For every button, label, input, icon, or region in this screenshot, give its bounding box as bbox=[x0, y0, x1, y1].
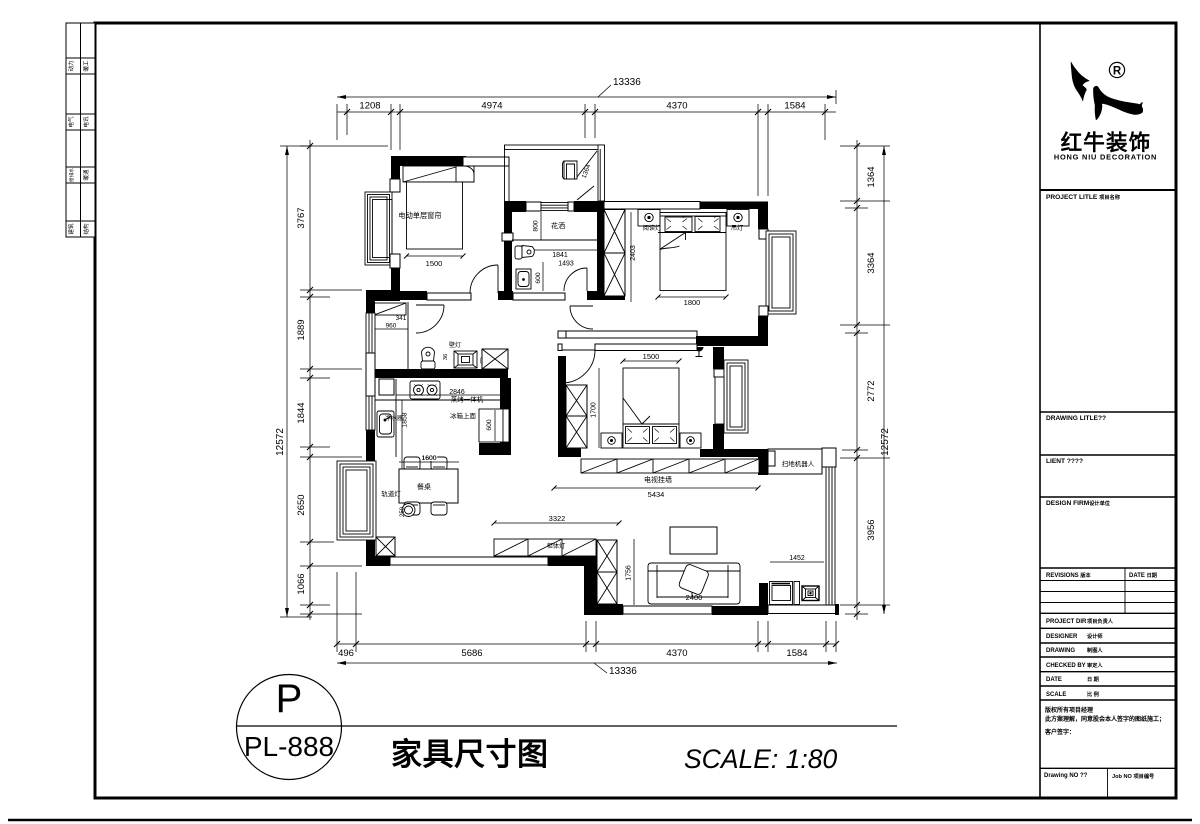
svg-text:壁灯: 壁灯 bbox=[449, 341, 461, 349]
svg-text:1800: 1800 bbox=[684, 298, 701, 307]
svg-text:5686: 5686 bbox=[461, 648, 482, 659]
svg-text:暖工: 暖工 bbox=[82, 60, 90, 72]
svg-text:版权所有项目经理: 版权所有项目经理 bbox=[1044, 706, 1093, 714]
svg-text:DATE 日期: DATE 日期 bbox=[1129, 571, 1157, 579]
svg-text:DRAWING LITLE??: DRAWING LITLE?? bbox=[1046, 415, 1106, 422]
svg-text:设计师: 设计师 bbox=[1087, 632, 1103, 640]
svg-text:1493: 1493 bbox=[558, 261, 574, 268]
svg-text:PROJECT DIR: PROJECT DIR bbox=[1046, 619, 1087, 625]
svg-text:SCALE: 1:80: SCALE: 1:80 bbox=[684, 744, 837, 774]
svg-text:341: 341 bbox=[396, 315, 407, 322]
svg-text:5434: 5434 bbox=[648, 490, 665, 499]
svg-text:1364: 1364 bbox=[866, 166, 877, 187]
svg-text:Job NO 项目编号: Job NO 项目编号 bbox=[1112, 772, 1154, 780]
svg-text:REVISIONS 版本: REVISIONS 版本 bbox=[1046, 571, 1092, 579]
svg-text:1208: 1208 bbox=[359, 101, 380, 112]
svg-text:P: P bbox=[276, 677, 303, 721]
svg-text:红牛装饰: 红牛装饰 bbox=[1061, 130, 1152, 155]
svg-text:R: R bbox=[1113, 66, 1122, 78]
svg-text:1600: 1600 bbox=[421, 455, 436, 462]
svg-text:家具尺寸图: 家具尺寸图 bbox=[391, 737, 549, 772]
svg-text:13336: 13336 bbox=[609, 666, 637, 677]
svg-text:结构: 结构 bbox=[82, 223, 90, 235]
svg-text:柜体灯: 柜体灯 bbox=[547, 542, 566, 550]
svg-text:HONG NIU DECORATION: HONG NIU DECORATION bbox=[1054, 153, 1157, 162]
svg-text:电动单层窗帘: 电动单层窗帘 bbox=[398, 211, 441, 220]
svg-text:3364: 3364 bbox=[866, 252, 877, 273]
svg-text:1700: 1700 bbox=[591, 402, 598, 418]
svg-text:净水器: 净水器 bbox=[385, 414, 403, 422]
svg-text:冰箱上面: 冰箱上面 bbox=[450, 411, 477, 420]
svg-text:DESIGNER: DESIGNER bbox=[1046, 634, 1078, 640]
svg-text:2772: 2772 bbox=[866, 380, 877, 401]
svg-text:2846: 2846 bbox=[449, 389, 465, 396]
svg-text:客户签字：: 客户签字： bbox=[1044, 728, 1075, 736]
svg-text:DATE: DATE bbox=[1046, 677, 1062, 683]
svg-text:1584: 1584 bbox=[786, 648, 807, 659]
svg-text:960: 960 bbox=[386, 323, 397, 330]
svg-text:轨道灯: 轨道灯 bbox=[381, 489, 401, 498]
svg-text:花洒: 花洒 bbox=[551, 221, 565, 230]
svg-text:Drawing NO ??: Drawing NO ?? bbox=[1044, 773, 1088, 779]
svg-text:3322: 3322 bbox=[549, 514, 566, 523]
svg-text:PL-888: PL-888 bbox=[244, 731, 334, 762]
svg-text:制图人: 制图人 bbox=[1087, 646, 1103, 654]
svg-text:1841: 1841 bbox=[552, 252, 568, 259]
svg-text:1066: 1066 bbox=[296, 573, 307, 594]
svg-text:LIENT ????: LIENT ???? bbox=[1046, 458, 1083, 465]
svg-text:1844: 1844 bbox=[296, 402, 307, 423]
svg-text:CHECKED BY: CHECKED BY bbox=[1046, 663, 1086, 669]
svg-text:给排水: 给排水 bbox=[68, 168, 75, 182]
svg-text:4974: 4974 bbox=[481, 101, 502, 112]
svg-text:电气: 电气 bbox=[67, 116, 75, 128]
svg-text:阅读灯: 阅读灯 bbox=[643, 224, 662, 232]
svg-text:1584: 1584 bbox=[784, 101, 805, 112]
svg-text:250: 250 bbox=[400, 506, 406, 517]
svg-text:3767: 3767 bbox=[296, 207, 307, 228]
svg-text:12572: 12572 bbox=[880, 428, 891, 456]
svg-text:项目负责人: 项目负责人 bbox=[1087, 617, 1114, 625]
svg-text:建筑: 建筑 bbox=[67, 223, 75, 235]
svg-text:4370: 4370 bbox=[666, 648, 687, 659]
svg-text:电讯: 电讯 bbox=[82, 116, 90, 128]
svg-text:DRAWING: DRAWING bbox=[1046, 648, 1075, 654]
svg-text:餐桌: 餐桌 bbox=[417, 482, 431, 491]
svg-text:比 例: 比 例 bbox=[1087, 690, 1099, 698]
svg-text:496: 496 bbox=[338, 648, 354, 659]
svg-text:1452: 1452 bbox=[789, 555, 805, 562]
svg-text:800: 800 bbox=[533, 220, 540, 232]
svg-text:36: 36 bbox=[443, 354, 449, 360]
svg-text:日 期: 日 期 bbox=[1087, 675, 1099, 683]
svg-text:蒸烤一体机: 蒸烤一体机 bbox=[451, 395, 484, 404]
svg-text:1858: 1858 bbox=[402, 412, 409, 427]
svg-text:SCALE: SCALE bbox=[1046, 692, 1066, 698]
svg-text:电视挂墙: 电视挂墙 bbox=[644, 475, 672, 484]
svg-text:PROJECT LITLE 项目名称: PROJECT LITLE 项目名称 bbox=[1046, 193, 1121, 201]
svg-text:1756: 1756 bbox=[626, 565, 633, 581]
svg-text:3956: 3956 bbox=[866, 519, 877, 540]
svg-text:4370: 4370 bbox=[666, 101, 687, 112]
svg-text:扫地机器人: 扫地机器人 bbox=[782, 459, 815, 468]
svg-text:1889: 1889 bbox=[296, 319, 307, 340]
svg-text:2403: 2403 bbox=[630, 245, 637, 261]
svg-text:暖通: 暖通 bbox=[82, 169, 90, 181]
svg-text:2400: 2400 bbox=[686, 593, 703, 602]
svg-text:动力: 动力 bbox=[67, 60, 75, 71]
svg-text:审定人: 审定人 bbox=[1087, 661, 1103, 669]
svg-text:12572: 12572 bbox=[275, 428, 286, 456]
svg-text:吊灯: 吊灯 bbox=[731, 224, 743, 232]
svg-text:1500: 1500 bbox=[643, 352, 660, 361]
svg-text:2650: 2650 bbox=[296, 494, 307, 515]
svg-text:此方案理解，同意股会本人签字的图纸施工；: 此方案理解，同意股会本人签字的图纸施工； bbox=[1045, 715, 1165, 723]
svg-text:600: 600 bbox=[535, 272, 542, 284]
svg-text:13336: 13336 bbox=[613, 77, 641, 88]
svg-text:600: 600 bbox=[486, 419, 493, 431]
svg-text:DESIGN FIRM设计单位: DESIGN FIRM设计单位 bbox=[1046, 499, 1111, 507]
svg-text:1500: 1500 bbox=[426, 259, 443, 268]
